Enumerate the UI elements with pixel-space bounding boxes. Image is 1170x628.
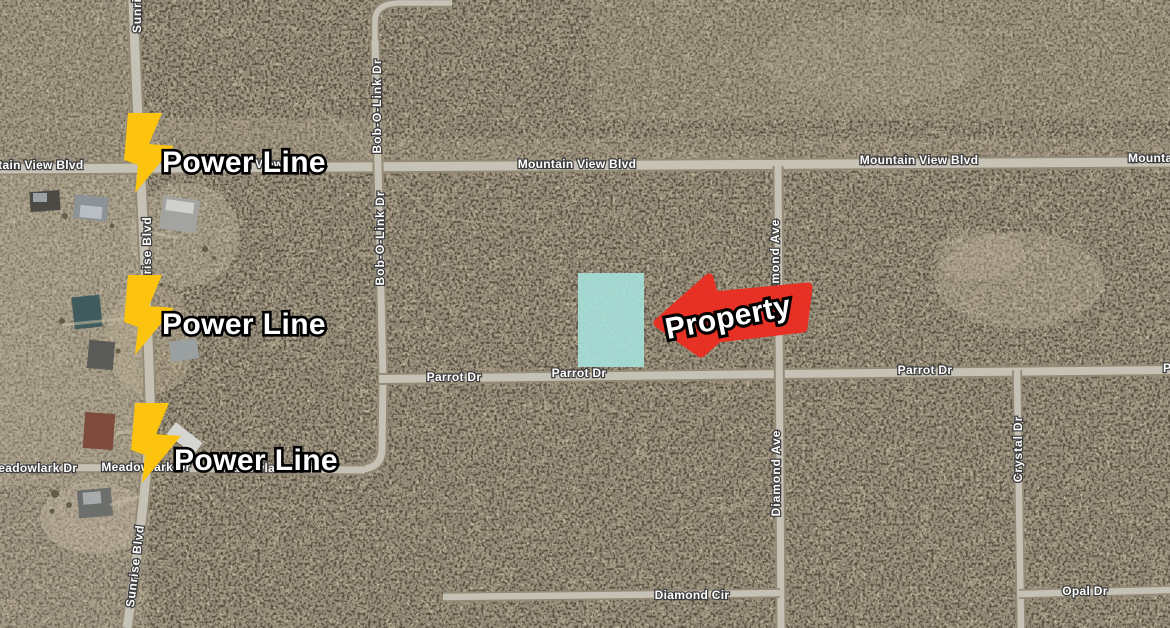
svg-text:Diamond Cir: Diamond Cir bbox=[655, 588, 730, 602]
svg-text:Parrot Dr: Parrot Dr bbox=[552, 366, 607, 380]
svg-text:Parrot Dr: Parrot Dr bbox=[1163, 361, 1170, 375]
svg-text:Mountain View Blvd: Mountain View Blvd bbox=[1128, 151, 1170, 165]
svg-text:Power Line: Power Line bbox=[174, 444, 338, 477]
svg-text:Bob-O-Link Dr: Bob-O-Link Dr bbox=[370, 59, 384, 154]
svg-text:Meadowlark Dr: Meadowlark Dr bbox=[0, 461, 77, 475]
svg-text:Mountain View Blvd: Mountain View Blvd bbox=[518, 157, 637, 171]
svg-text:Crystal Dr: Crystal Dr bbox=[1011, 416, 1025, 482]
svg-text:Parrot Dr: Parrot Dr bbox=[427, 370, 482, 384]
svg-text:Diamond Ave: Diamond Ave bbox=[769, 430, 783, 517]
svg-text:Bob-O-Link Dr: Bob-O-Link Dr bbox=[373, 191, 387, 286]
svg-text:Opal Dr: Opal Dr bbox=[1062, 584, 1107, 598]
svg-text:Power Line: Power Line bbox=[162, 308, 326, 341]
svg-text:Parrot Dr: Parrot Dr bbox=[898, 363, 953, 377]
svg-text:Mountain View Blvd: Mountain View Blvd bbox=[860, 153, 979, 167]
svg-text:Mountain View Blvd: Mountain View Blvd bbox=[0, 158, 84, 172]
svg-text:Power Line: Power Line bbox=[162, 146, 326, 179]
svg-text:Sunrise Blvd: Sunrise Blvd bbox=[130, 0, 144, 33]
